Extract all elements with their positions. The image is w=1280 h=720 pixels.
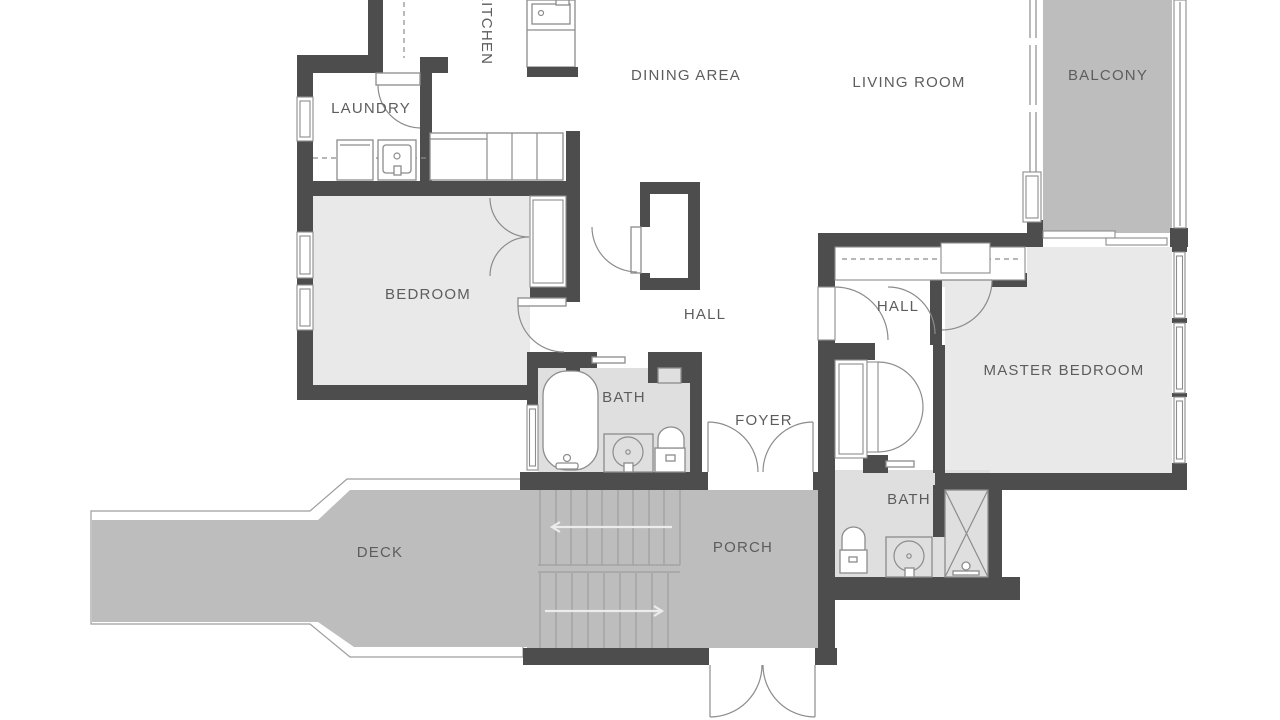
bedroom-label: BEDROOM [385,286,471,303]
hall-wardrobe [835,243,1025,280]
balcony-railing [1174,0,1186,228]
hall-linen-closet [835,360,878,458]
vanity-sink [886,537,932,577]
floors [91,0,1172,657]
wall [1172,393,1187,397]
foyer-double-door [708,422,813,490]
wall [297,73,313,97]
wall [520,472,708,490]
porch-label: PORCH [713,539,773,556]
laundry-fixtures [313,140,430,180]
wall [827,343,875,360]
bath-right-pocket-door [886,461,914,467]
wall [368,0,383,57]
wall [420,57,448,73]
porch-double-door [709,648,815,717]
wall [1172,318,1187,323]
wall [297,278,313,285]
bath-right-label: BATH [887,491,931,508]
dining-area-label: DINING AREA [631,67,741,84]
wall [297,55,383,73]
window [1174,252,1185,318]
hall-center-label: HALL [684,306,726,323]
kitchen-label: KITCHEN [478,0,495,65]
wall [930,273,942,345]
wall [988,483,1002,577]
bedroom-closet [530,196,566,287]
hall-closet-door [592,227,650,273]
wall [835,577,1020,600]
toilet [840,527,867,573]
wall [1172,247,1187,252]
shower [945,490,988,577]
wall [1170,228,1188,247]
window [527,405,538,470]
window [297,232,313,278]
wall [297,141,313,183]
wall [1172,463,1187,490]
floor-plan: KITCHEN LAUNDRY DINING AREA LIVING ROOM … [0,0,1280,720]
vanity-sink [604,434,653,472]
window [297,97,313,141]
bath-center-pocket-door [592,352,648,368]
wall [818,233,835,287]
wall [297,385,530,400]
wall [935,473,1187,490]
wall [1027,220,1043,247]
wall [527,368,538,405]
foyer-label: FOYER [735,412,793,429]
sliding-door [1043,231,1167,245]
wall [566,131,580,302]
master-bedroom-label: MASTER BEDROOM [984,362,1145,379]
laundry-label: LAUNDRY [331,100,411,117]
kitchen-counter [430,133,563,180]
bathtub [543,371,598,470]
window [1174,397,1185,463]
window-wall [1023,0,1041,222]
wall [818,472,835,665]
wall [933,345,945,473]
wall [933,485,945,537]
wall [297,181,580,196]
balcony-label: BALCONY [1068,67,1148,84]
window [1174,323,1185,393]
living-room-label: LIVING ROOM [852,74,965,91]
wall [527,352,597,368]
bath-center-label: BATH [602,389,646,406]
balcony-floor [1043,0,1172,233]
window [297,285,313,330]
hall-closet-interior [650,194,688,278]
wall [523,648,709,665]
toilet [655,427,685,472]
wall [297,196,313,232]
hall-closet-bifold [878,362,923,452]
deck-label: DECK [357,544,403,561]
wall [818,233,1043,247]
bath-niche [658,368,681,383]
hall-right-label: HALL [877,298,919,315]
wall [815,648,837,665]
